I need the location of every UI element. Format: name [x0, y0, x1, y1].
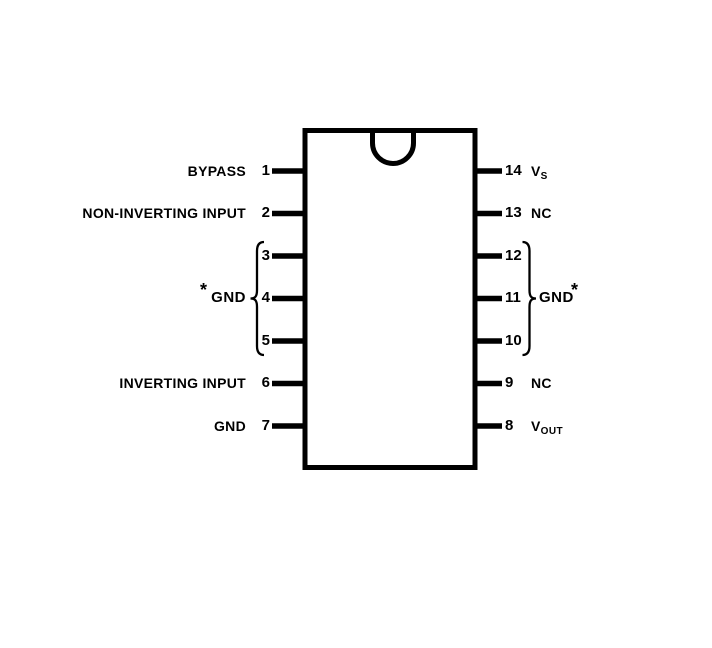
pin-stub-3	[272, 253, 305, 259]
pin-label-nc-13: NC	[531, 205, 552, 221]
pin-label-nc-9: NC	[531, 375, 552, 391]
ic-pinout-diagram: BYPASS NON-INVERTING INPUT INVERTING INP…	[0, 0, 712, 648]
vs-subscript: S	[541, 171, 548, 182]
diagram-linework	[0, 0, 712, 648]
pin-stub-8	[475, 423, 502, 429]
left-pin-stubs	[272, 168, 305, 429]
pin-stub-4	[272, 296, 305, 302]
pin-stub-6	[272, 381, 305, 387]
pin-stub-14	[475, 168, 502, 174]
pin-number-5: 5	[262, 333, 270, 349]
pin-label-bypass: BYPASS	[188, 163, 246, 179]
pin-number-13: 13	[505, 205, 522, 221]
pin-stub-13	[475, 211, 502, 217]
pin-number-11: 11	[505, 290, 521, 306]
pin-stub-9	[475, 381, 502, 387]
pin-number-6: 6	[262, 375, 270, 391]
vs-main: V	[531, 163, 541, 179]
pin-label-vs: VS	[531, 163, 548, 185]
right-group-gnd-label: GND	[539, 290, 574, 306]
pin-label-non-inverting-input: NON-INVERTING INPUT	[82, 205, 246, 221]
ic-body	[305, 131, 475, 468]
pin-number-7: 7	[262, 418, 270, 434]
pin-stub-1	[272, 168, 305, 174]
right-gnd-brace	[523, 242, 537, 355]
right-group-asterisk: *	[571, 282, 578, 298]
pin-stub-11	[475, 296, 502, 302]
left-group-asterisk: *	[200, 282, 207, 298]
left-group-gnd-label: GND	[211, 290, 246, 306]
vout-main: V	[531, 418, 541, 434]
pin-number-3: 3	[262, 248, 270, 264]
orientation-notch-icon	[372, 129, 413, 163]
pin-stub-2	[272, 211, 305, 217]
pin-number-9: 9	[505, 375, 513, 391]
pin-number-14: 14	[505, 163, 522, 179]
pin-label-vout: VOUT	[531, 418, 563, 440]
pin-number-4: 4	[262, 290, 270, 306]
pin-number-10: 10	[505, 333, 522, 349]
pin-stub-12	[475, 253, 502, 259]
vout-subscript: OUT	[541, 426, 563, 437]
pin-stub-10	[475, 338, 502, 344]
pin-stub-5	[272, 338, 305, 344]
pin-stub-7	[272, 423, 305, 429]
pin-label-gnd-7: GND	[214, 418, 246, 434]
pin-label-inverting-input: INVERTING INPUT	[119, 375, 246, 391]
pin-number-1: 1	[262, 163, 270, 179]
pin-number-8: 8	[505, 418, 513, 434]
right-pin-stubs	[475, 168, 502, 429]
pin-number-2: 2	[262, 205, 270, 221]
pin-number-12: 12	[505, 248, 522, 264]
